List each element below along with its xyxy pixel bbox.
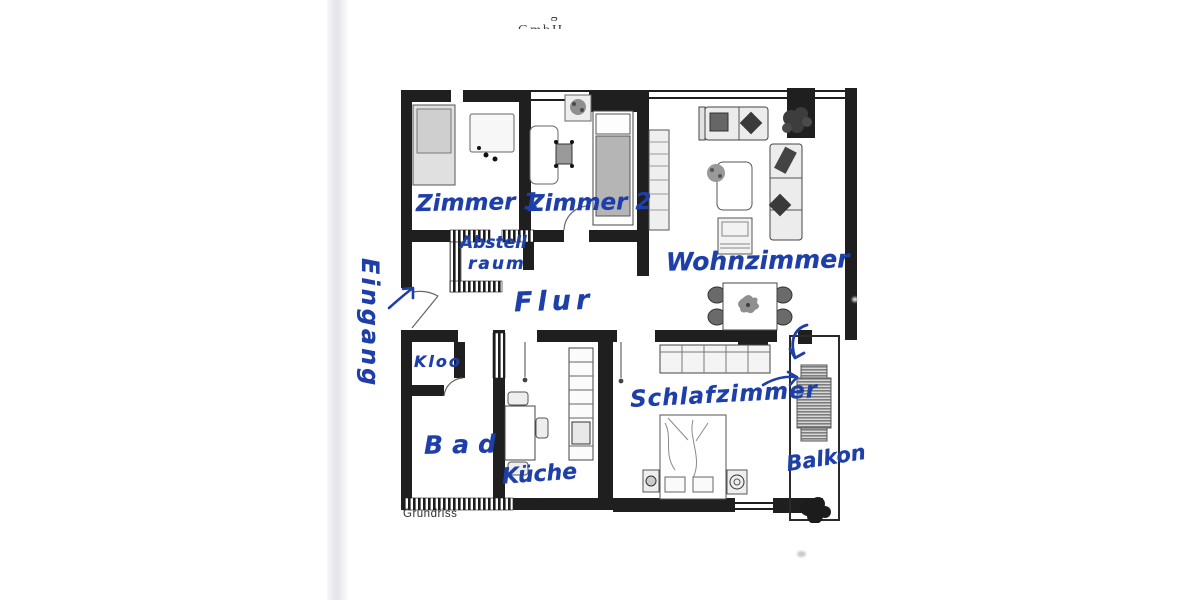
letterhead-fragment: ·· ·g······ ––– ·· ·········· GmbH [518, 17, 798, 29]
label-abstellraum-line2: raum [468, 254, 526, 274]
balcony-down-arrow-icon [783, 322, 813, 364]
entry-arrow-icon [386, 282, 420, 312]
label-kloo: Kloo [414, 352, 462, 371]
balcony-right-arrow-icon [760, 368, 802, 394]
label-zimmer1: Zimmer 1 [416, 189, 540, 217]
label-bad: Bad [424, 429, 505, 459]
zimmer1-furniture [413, 105, 514, 185]
zimmer1-desk [470, 114, 514, 152]
scan-speck [797, 551, 806, 557]
coffee-table-plant [707, 164, 725, 182]
sofa-armrest [699, 107, 705, 140]
plan-caption: Grundriss [403, 508, 457, 520]
label-kueche: Küche [501, 459, 578, 489]
label-eingang: Eingang [356, 258, 384, 388]
kueche-furniture [505, 348, 593, 475]
scan-speck [852, 297, 858, 302]
label-zimmer2: Zimmer 2 [528, 189, 652, 217]
dining-set [708, 283, 792, 330]
letterhead-clipped-text: ·· ·g······ ––– ·· ·········· GmbH [518, 17, 798, 29]
kitchen-sink [572, 422, 590, 444]
wohnzimmer-furniture [649, 107, 812, 330]
schlafzimmer-furniture [643, 345, 770, 499]
zimmer2-plant [570, 99, 586, 115]
label-abstellraum-line1: Abstell [460, 233, 527, 253]
scanned-floorplan-document: ·· ·g······ ––– ·· ·········· GmbH [0, 0, 1200, 600]
wardrobe [660, 345, 770, 373]
page-left-edge-shadow [327, 0, 349, 600]
zimmer2-chair [556, 144, 572, 164]
label-flur: Flur [513, 285, 594, 319]
label-wohnzimmer: Wohnzimmer [666, 244, 850, 276]
zimmer2-desk [530, 126, 558, 184]
kitchen-table [505, 406, 535, 460]
